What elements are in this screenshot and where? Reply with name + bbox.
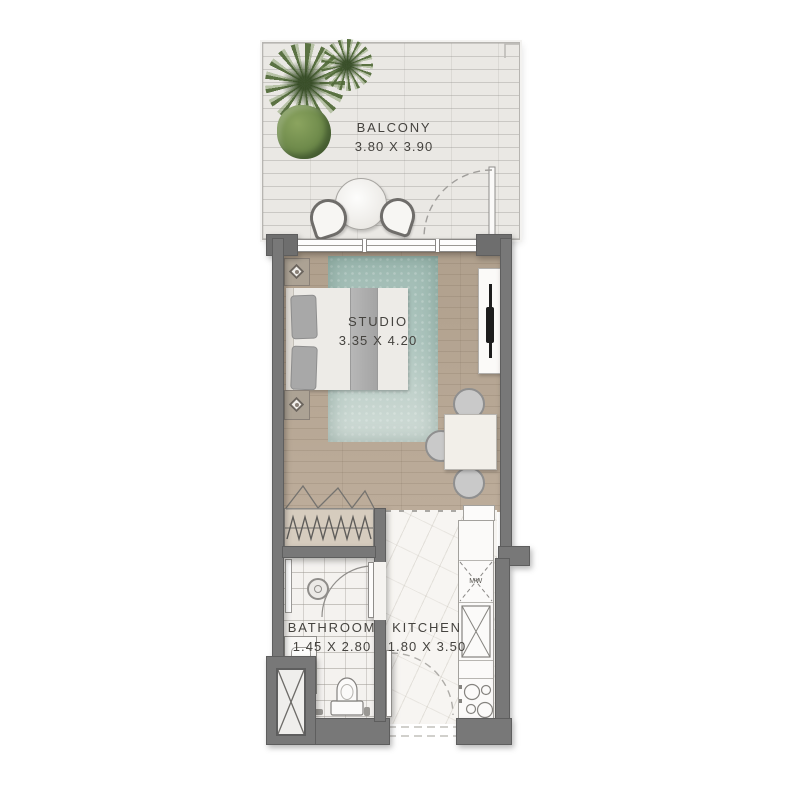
stove-icon: [459, 679, 493, 723]
wardrobe-icon: [284, 508, 374, 548]
room-name: BALCONY: [312, 120, 476, 135]
door-hardware-icon: [337, 549, 344, 558]
floor-plan: MW: [0, 0, 800, 800]
bath-accessory-icon: [314, 709, 323, 715]
balcony-label: BALCONY 3.80 X 3.90: [312, 120, 476, 154]
counter-section: [459, 521, 493, 561]
room-dimensions: 3.80 X 3.90: [312, 139, 476, 154]
tv-screen-icon: [486, 307, 494, 343]
room-dimensions: 3.35 X 4.20: [304, 333, 452, 348]
lamp-dot-icon: [295, 403, 299, 407]
dining-chair-icon: [453, 467, 485, 499]
pillow-icon: [290, 346, 318, 391]
bath-accessory-icon: [364, 707, 370, 716]
room-dimensions: 1.80 X 3.50: [357, 639, 497, 654]
sliding-window-icon: [284, 239, 500, 252]
studio-label: STUDIO 3.35 X 4.20: [304, 314, 452, 348]
shower-glass-icon: [285, 559, 292, 613]
shower-head-center-icon: [314, 585, 322, 593]
wall-bottom-left: [272, 718, 390, 745]
wall-right-lower: [495, 558, 510, 725]
palm-plant-icon: [321, 39, 373, 91]
window-mullion-icon: [362, 239, 367, 252]
nightstand-icon: [284, 258, 310, 286]
tv-console-icon: [478, 268, 502, 374]
wall-step: [498, 546, 530, 566]
hanger-rail-icon: [285, 509, 373, 547]
nightstand-icon: [284, 390, 310, 420]
window-mullion-icon: [435, 239, 440, 252]
kitchen-cabinet-icon: [463, 505, 495, 521]
dining-table-icon: [444, 414, 497, 470]
kitchen-label: KITCHEN 1.80 X 3.50: [357, 620, 497, 654]
shower-head-icon: [307, 578, 329, 600]
microwave-label: MW: [459, 578, 493, 585]
faucet-icon: [278, 659, 288, 665]
microwave-icon: MW: [459, 561, 493, 603]
lamp-dot-icon: [295, 270, 299, 274]
door-hardware-icon: [351, 549, 358, 558]
counter-section: [459, 661, 493, 679]
room-name: STUDIO: [304, 314, 452, 329]
room-name: KITCHEN: [357, 620, 497, 635]
